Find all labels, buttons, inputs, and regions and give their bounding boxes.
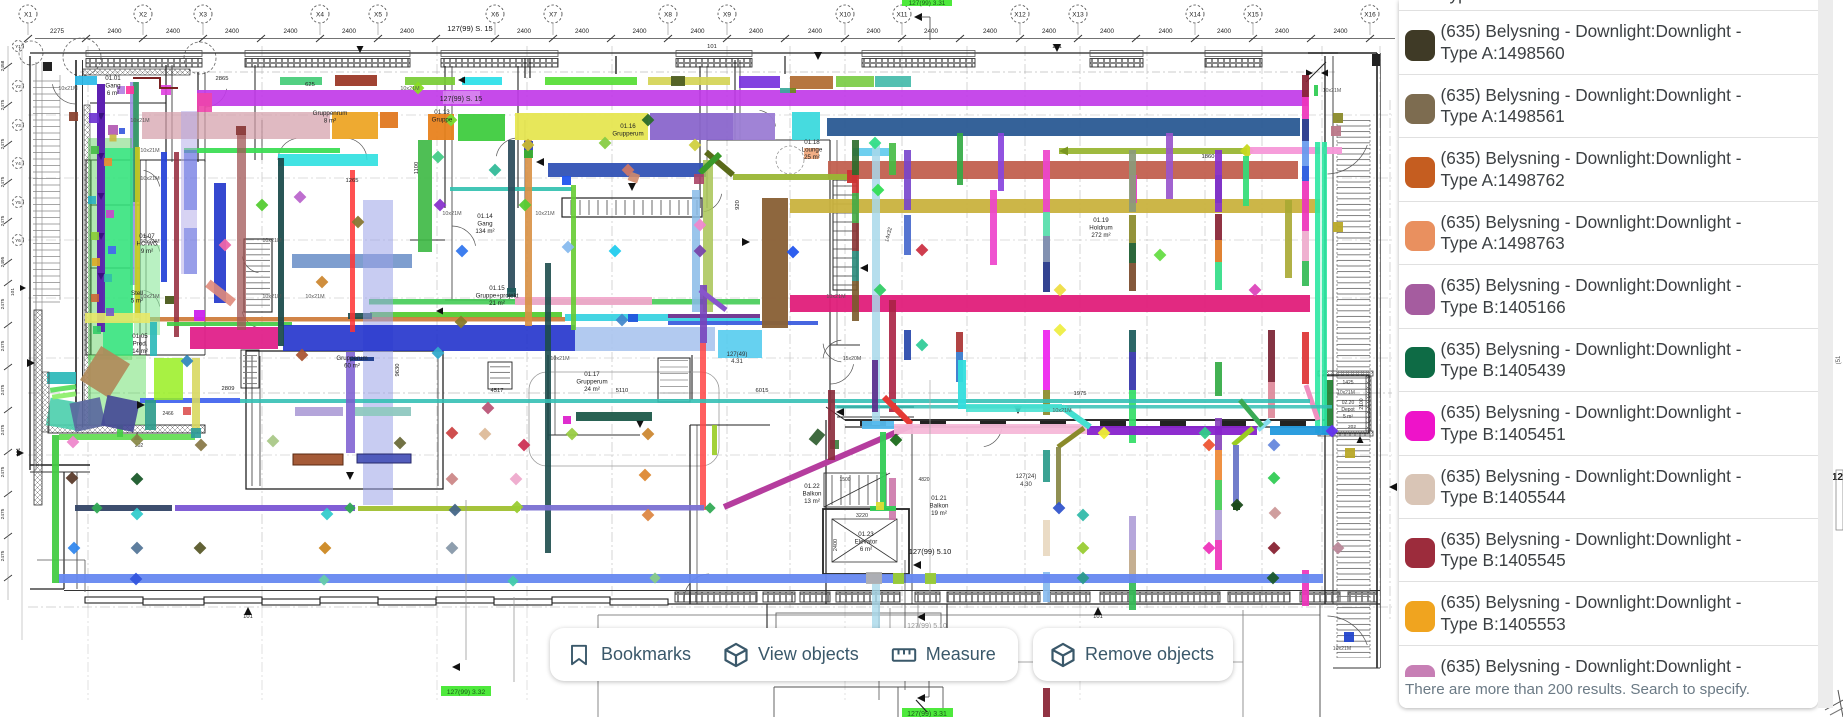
- svg-text:2400: 2400: [833, 539, 839, 551]
- svg-text:8 m²: 8 m²: [324, 118, 336, 125]
- svg-text:2400: 2400: [1333, 28, 1348, 35]
- svg-text:1500: 1500: [839, 477, 850, 483]
- svg-text:2400: 2400: [983, 28, 998, 35]
- svg-text:2400: 2400: [808, 28, 823, 35]
- svg-text:Holdrum: Holdrum: [1089, 225, 1112, 232]
- svg-text:2475: 2475: [0, 99, 6, 110]
- svg-text:10x21M: 10x21M: [442, 211, 462, 217]
- svg-text:Depot: Depot: [1341, 407, 1355, 413]
- svg-text:4.31: 4.31: [731, 359, 743, 365]
- svg-text:127(99) S. 15: 127(99) S. 15: [440, 96, 483, 103]
- svg-text:2400: 2400: [1042, 28, 1057, 35]
- svg-text:5110: 5110: [616, 388, 628, 394]
- svg-text:10x21M: 10x21M: [1333, 646, 1351, 652]
- svg-text:920: 920: [735, 200, 741, 210]
- svg-text:X12: X12: [1014, 12, 1026, 19]
- svg-text:1265: 1265: [346, 178, 359, 184]
- svg-text:01.13: 01.13: [434, 109, 450, 116]
- svg-text:Y2: Y2: [15, 84, 21, 89]
- svg-text:127(99) 3.32: 127(99) 3.32: [447, 689, 486, 696]
- svg-text:01.17: 01.17: [584, 371, 600, 378]
- svg-text:X9: X9: [723, 12, 731, 19]
- svg-text:4820: 4820: [918, 477, 929, 483]
- svg-text:01.14: 01.14: [477, 213, 493, 220]
- svg-text:01.18: 01.18: [804, 139, 820, 146]
- svg-text:X8: X8: [664, 12, 672, 19]
- svg-text:X7: X7: [549, 12, 557, 19]
- svg-text:3220: 3220: [856, 513, 868, 519]
- svg-text:10x21M: 10x21M: [262, 238, 282, 244]
- svg-text:14x32: 14x32: [884, 227, 894, 243]
- svg-text:2475: 2475: [0, 424, 6, 435]
- svg-text:2400: 2400: [924, 28, 939, 35]
- svg-text:2400: 2400: [1158, 28, 1173, 35]
- svg-text:2475: 2475: [0, 384, 6, 395]
- svg-text:2400: 2400: [107, 28, 122, 35]
- svg-text:Elevator: Elevator: [855, 539, 878, 546]
- svg-text:Grupperum: Grupperum: [336, 355, 367, 362]
- svg-text:Gruppe: Gruppe: [432, 117, 453, 124]
- svg-text:01.01: 01.01: [105, 75, 121, 82]
- svg-text:X2: X2: [139, 12, 147, 19]
- svg-text:2400: 2400: [1217, 28, 1232, 35]
- svg-text:2400: 2400: [283, 28, 298, 35]
- svg-text:Gang: Gang: [477, 221, 493, 228]
- svg-text:12: 12: [1832, 472, 1843, 483]
- svg-text:1100: 1100: [414, 162, 420, 174]
- svg-text:01.19: 01.19: [1093, 217, 1109, 224]
- svg-text:2400: 2400: [1100, 28, 1115, 35]
- svg-text:5 m²: 5 m²: [1343, 414, 1353, 420]
- svg-text:01.15: 01.15: [489, 285, 505, 292]
- svg-text:(51: (51: [1836, 355, 1842, 364]
- svg-text:10x21M: 10x21M: [140, 148, 160, 154]
- svg-text:10x21M: 10x21M: [535, 211, 555, 217]
- svg-text:10x21M: 10x21M: [130, 118, 150, 124]
- svg-text:Gang: Gang: [105, 83, 121, 90]
- svg-text:2475: 2475: [0, 138, 6, 149]
- svg-text:2400: 2400: [632, 28, 647, 35]
- svg-text:2475: 2475: [0, 550, 6, 561]
- svg-text:2495: 2495: [0, 256, 6, 267]
- svg-text:Gruppe+projekt: Gruppe+projekt: [476, 293, 519, 300]
- svg-text:01.22: 01.22: [804, 483, 820, 490]
- svg-text:15x20M: 15x20M: [843, 356, 861, 362]
- svg-text:2458: 2458: [0, 60, 6, 71]
- svg-text:1425: 1425: [1342, 380, 1353, 386]
- svg-text:127(49): 127(49): [727, 352, 748, 358]
- svg-text:9630: 9630: [395, 364, 401, 377]
- svg-text:2400: 2400: [866, 28, 881, 35]
- svg-text:Y3: Y3: [15, 123, 21, 128]
- svg-text:625: 625: [305, 82, 315, 88]
- svg-text:2475: 2475: [0, 340, 6, 351]
- svg-text:2400: 2400: [517, 28, 532, 35]
- svg-text:X11: X11: [896, 12, 907, 19]
- svg-text:6 m²: 6 m²: [860, 546, 872, 553]
- svg-text:10x21M: 10x21M: [826, 294, 846, 300]
- svg-text:272 m²: 272 m²: [1091, 232, 1110, 239]
- svg-text:2400: 2400: [690, 28, 705, 35]
- svg-text:01.23: 01.23: [858, 531, 874, 538]
- svg-text:127(99) 3.31: 127(99) 3.31: [909, 0, 946, 7]
- svg-text:10x21M: 10x21M: [140, 239, 160, 245]
- svg-text:01.21: 01.21: [931, 495, 947, 502]
- svg-text:Grupperum: Grupperum: [612, 131, 643, 138]
- svg-text:10x21M: 10x21M: [1052, 408, 1072, 414]
- svg-text:10x21M: 10x21M: [58, 86, 78, 92]
- svg-text:10x21M: 10x21M: [140, 294, 160, 300]
- svg-text:01.16: 01.16: [620, 123, 636, 130]
- svg-text:2100: 2100: [1359, 398, 1365, 409]
- svg-text:2475: 2475: [0, 215, 6, 226]
- svg-text:Grupperum: Grupperum: [576, 379, 607, 386]
- svg-text:Lounge: Lounge: [802, 147, 823, 154]
- svg-text:10x21M: 10x21M: [140, 176, 160, 182]
- svg-text:Y6: Y6: [15, 238, 21, 243]
- svg-text:2400: 2400: [225, 28, 240, 35]
- svg-text:X3: X3: [199, 12, 207, 19]
- svg-text:1860: 1860: [1202, 154, 1215, 160]
- svg-text:134 m²: 134 m²: [475, 228, 494, 235]
- svg-text:101: 101: [707, 44, 717, 50]
- svg-text:2475: 2475: [0, 176, 6, 187]
- svg-text:127(24): 127(24): [1016, 474, 1037, 480]
- svg-text:10x21M: 10x21M: [262, 294, 282, 300]
- svg-text:10x21M: 10x21M: [1337, 390, 1355, 396]
- svg-text:2275: 2275: [50, 28, 65, 35]
- svg-text:Balkon: Balkon: [930, 503, 949, 510]
- svg-text:2475: 2475: [0, 466, 6, 477]
- svg-text:6 m²: 6 m²: [107, 90, 119, 97]
- svg-text:Prod.: Prod.: [133, 341, 148, 348]
- svg-text:2400: 2400: [1275, 28, 1290, 35]
- svg-text:2400: 2400: [400, 28, 415, 35]
- svg-text:X15: X15: [1247, 12, 1259, 19]
- svg-text:10x21M: 10x21M: [550, 356, 570, 362]
- svg-text:60 m²: 60 m²: [344, 363, 360, 370]
- svg-text:4.30: 4.30: [1020, 482, 1032, 488]
- svg-text:24 m²: 24 m²: [584, 386, 600, 393]
- svg-text:4517: 4517: [491, 388, 504, 394]
- svg-text:X5: X5: [374, 12, 382, 19]
- svg-text:101: 101: [10, 288, 16, 296]
- svg-text:02.20: 02.20: [1342, 400, 1355, 406]
- svg-text:X10: X10: [839, 12, 851, 19]
- svg-text:2400: 2400: [166, 28, 181, 35]
- svg-text:14 m²: 14 m²: [132, 348, 148, 355]
- svg-text:13 m²: 13 m²: [804, 498, 820, 505]
- svg-text:Gruppenrum: Gruppenrum: [313, 110, 348, 117]
- svg-text:127(99) 5.10: 127(99) 5.10: [909, 547, 952, 556]
- svg-text:2475: 2475: [0, 508, 6, 519]
- svg-text:6015: 6015: [756, 388, 769, 394]
- svg-text:202: 202: [1348, 424, 1356, 430]
- svg-text:2466: 2466: [162, 411, 173, 417]
- svg-text:2400: 2400: [342, 28, 357, 35]
- svg-text:Y4: Y4: [15, 161, 21, 166]
- svg-text:10x21M: 10x21M: [1323, 88, 1341, 94]
- svg-text:1975: 1975: [1074, 391, 1087, 397]
- svg-text:2865: 2865: [216, 76, 229, 82]
- svg-text:19 m²: 19 m²: [931, 510, 947, 517]
- svg-text:X14: X14: [1189, 12, 1201, 19]
- svg-text:2400: 2400: [749, 28, 764, 35]
- svg-text:10x21M: 10x21M: [305, 294, 325, 300]
- svg-text:Y5: Y5: [15, 200, 21, 205]
- svg-text:2475: 2475: [0, 298, 6, 309]
- svg-text:2809: 2809: [222, 386, 235, 392]
- svg-text:21 m²: 21 m²: [489, 300, 505, 307]
- svg-text:X4: X4: [316, 12, 324, 19]
- svg-text:01.05: 01.05: [132, 333, 148, 340]
- svg-text:127(99) S. 15: 127(99) S. 15: [447, 24, 492, 33]
- svg-text:25 m²: 25 m²: [804, 154, 820, 161]
- svg-text:X13: X13: [1072, 12, 1084, 19]
- svg-text:X16: X16: [1364, 12, 1376, 19]
- svg-text:X6: X6: [491, 12, 499, 19]
- svg-text:2400: 2400: [575, 28, 590, 35]
- svg-text:X1: X1: [24, 12, 32, 19]
- svg-text:Balkon: Balkon: [803, 491, 822, 498]
- svg-text:10x21M: 10x21M: [400, 86, 420, 92]
- svg-text:9 m²: 9 m²: [141, 248, 153, 255]
